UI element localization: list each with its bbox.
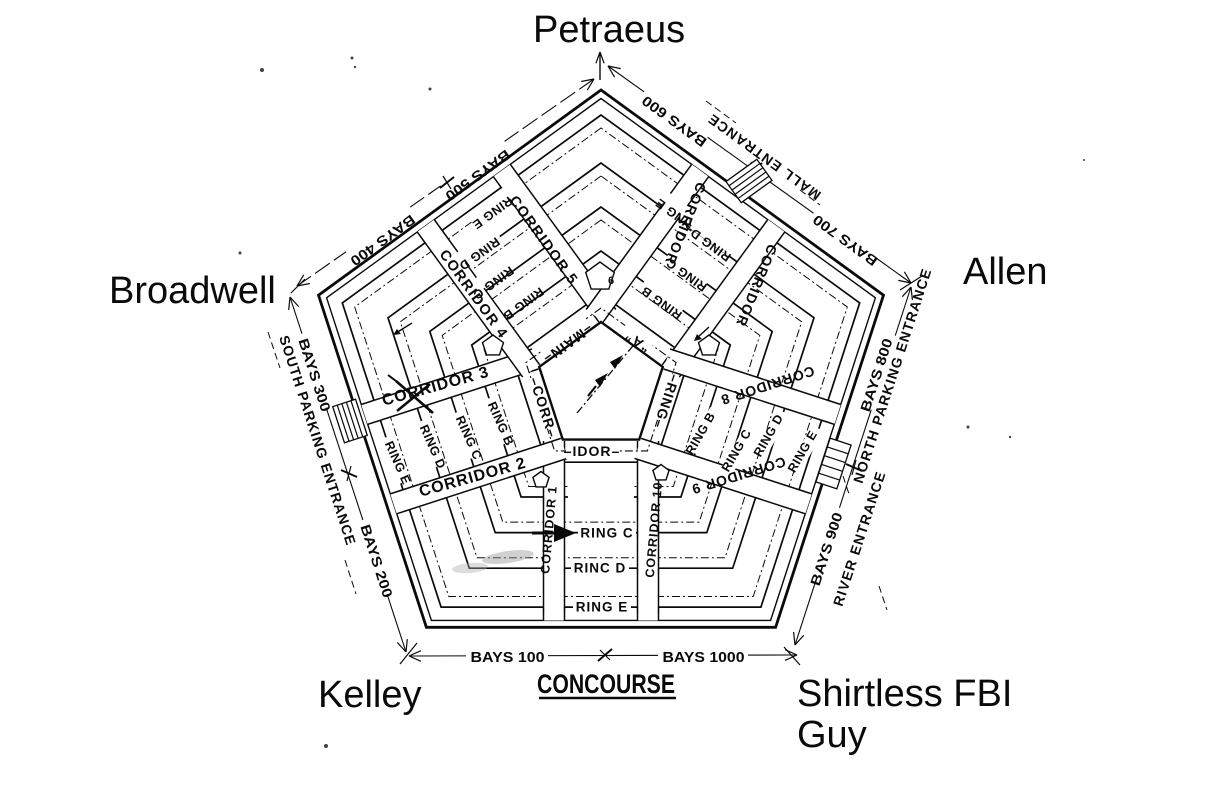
svg-text:CONCOURSE: CONCOURSE (537, 669, 675, 699)
svg-text:RINC D: RINC D (574, 561, 627, 576)
svg-text:BAYS 100: BAYS 100 (471, 649, 545, 666)
svg-text:Shirtless FBI: Shirtless FBI (797, 673, 1012, 715)
svg-text:Allen: Allen (963, 251, 1048, 293)
svg-text:RING C: RING C (580, 526, 633, 541)
svg-text:Kelley: Kelley (318, 674, 422, 716)
svg-text:Broadwell: Broadwell (109, 270, 276, 312)
svg-text:BAYS 1000: BAYS 1000 (663, 649, 745, 666)
svg-text:6: 6 (608, 275, 614, 287)
svg-text:–IDOR–: –IDOR– (564, 443, 621, 459)
svg-text:Guy: Guy (797, 714, 867, 756)
svg-text:RING E: RING E (576, 600, 629, 615)
svg-text:Petraeus: Petraeus (533, 9, 685, 51)
